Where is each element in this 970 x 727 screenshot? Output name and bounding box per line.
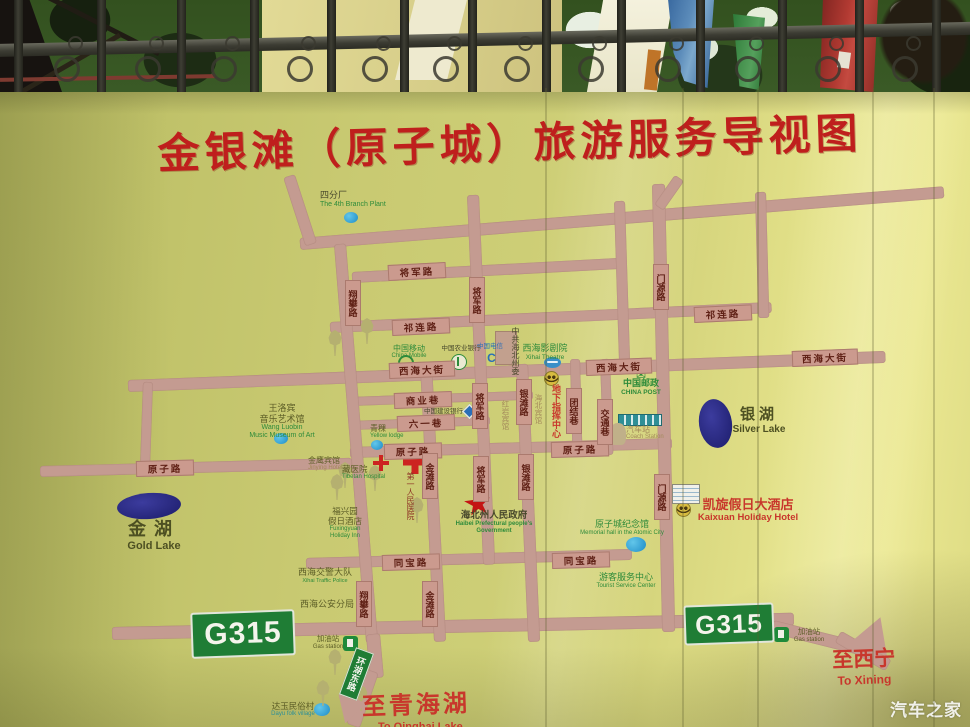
map-label: 达玉民俗村Dayu folk village — [266, 701, 320, 718]
map-label: 第一人民医院 — [402, 472, 418, 552]
fence-scroll-icon — [135, 56, 161, 82]
map-label-zh: 福兴园 假日酒店 — [316, 506, 374, 526]
fence-scroll-icon — [362, 56, 388, 82]
wheat-mark — [457, 357, 459, 366]
wave-mark — [547, 361, 558, 363]
map-label-en: Yellow lodge — [370, 433, 403, 440]
watermark: 汽车之家 — [890, 696, 962, 721]
map-label-en: Coach Station — [626, 434, 664, 441]
map-label: 中国电信 — [477, 343, 503, 351]
map-label-zh: 至西宁 — [825, 647, 902, 674]
fence-bar — [250, 0, 259, 92]
road — [652, 184, 675, 632]
map-label-zh: 西海公安分局 — [300, 599, 354, 610]
road-name-sign: 西海大街 — [389, 360, 456, 379]
map-label-zh: 四分厂 — [320, 190, 386, 201]
tree-icon — [328, 330, 342, 356]
map-label-zh: 海北州人民政府 — [438, 510, 550, 521]
fence-scroll-icon — [301, 36, 316, 51]
map-label-en: To Xining — [826, 671, 902, 688]
fence-bar — [400, 0, 409, 92]
lake-shape — [116, 491, 182, 521]
map-label-zh: 中国移动 — [390, 344, 428, 353]
map-label-zh: 加油站 — [792, 628, 826, 637]
fence-scroll-icon — [433, 56, 459, 82]
road-name-sign: 将军路 — [469, 277, 485, 323]
map-label-zh: 青稞 — [370, 424, 403, 433]
fence-bar — [542, 0, 551, 92]
map-label-zh: 第一人民医院 — [406, 472, 415, 520]
map-label-zh: 藏医院 — [342, 464, 385, 474]
road-name-sign: 翔攀路 — [356, 581, 372, 627]
road-name-sign: 西海大街 — [792, 348, 859, 367]
road-name-sign: 门源路 — [654, 474, 670, 520]
map-label-zh: 汽车站 — [626, 425, 664, 434]
road-name-sign: 银滩路 — [518, 454, 534, 500]
road-name-sign: 西海大街 — [586, 357, 653, 376]
map-label-en: Tourist Service Center — [592, 583, 660, 590]
road-name-sign: 翔攀路 — [345, 280, 361, 326]
map-label-en: Xihai Traffic Police — [292, 578, 358, 584]
map-label: To Qinghai Lake — [378, 721, 463, 727]
road-name-sign: 祁连路 — [694, 304, 753, 323]
map-label: 凯旋假日大酒店Kaixuan Holiday Hotel — [686, 497, 810, 524]
fence-scroll-icon — [578, 56, 604, 82]
map-label: 游客服务中心Tourist Service Center — [592, 572, 660, 590]
fence-bar — [617, 0, 626, 92]
map-label: 藏医院Tibetan Hospital — [342, 464, 385, 481]
map-label-zh: 中国建设银行 — [424, 408, 463, 416]
photo-of-tourist-map-sign: C✉金湖Gold Lake银湖Silver Lake将军路祁连路祁连路西海大街西… — [0, 0, 970, 727]
map-label-zh: 王洛宾 音乐艺术馆 — [232, 403, 332, 424]
map-label: 王洛宾 音乐艺术馆Wang Luobin Music Museum of Art — [232, 403, 332, 441]
road — [140, 382, 153, 472]
map-label-en: Jinying Hotel — [308, 465, 342, 472]
board-panel-seam — [545, 88, 547, 727]
road-name-sign: 将军路 — [473, 456, 489, 502]
map-label-zh: 游客服务中心 — [592, 572, 660, 583]
china-telecom-logo-icon: C — [484, 350, 499, 365]
map-label: 中国移动China Mobile — [390, 344, 428, 361]
fence-scroll-icon — [592, 36, 607, 51]
fence-bar — [327, 0, 336, 92]
map-label: 加油站Gas station — [792, 628, 826, 644]
map-label: 原子城纪念馆Memorial hall in the Atomic City — [576, 519, 668, 537]
fence-bar — [932, 0, 941, 92]
map-label: 至青海湖 — [362, 690, 471, 722]
map-label-zh: 金鹰宾馆 — [308, 456, 342, 465]
map-label-zh: 地下指挥中心 — [551, 384, 561, 438]
road — [283, 174, 317, 246]
road-name-sign: 金滩路 — [422, 453, 438, 499]
lake-label: 银湖Silver Lake — [731, 406, 787, 435]
map-label-zh: 中国邮政 — [618, 378, 664, 389]
map-label: 西海交警大队Xihai Traffic Police — [292, 567, 358, 584]
map-label-zh: 凯旋假日大酒店 — [686, 497, 810, 512]
fence-scroll-icon — [68, 36, 83, 51]
map-label-zh: 红岩宾馆 — [501, 400, 510, 430]
road-name-sign: 团结巷 — [566, 388, 582, 434]
lake-name: 银湖 — [731, 406, 787, 424]
fence-scroll-icon — [149, 36, 164, 51]
fence-bar — [14, 0, 23, 92]
map-label-en: Haibei Prefectural people's Government — [438, 521, 550, 535]
poi-dot-icon — [344, 212, 358, 223]
fence-scroll-icon — [287, 56, 313, 82]
map-label: 汽车站Coach Station — [626, 425, 664, 442]
map-label-zh: 西海交警大队 — [292, 567, 358, 578]
lake-name-en: Silver Lake — [731, 424, 787, 436]
road-name-sign: 将军路 — [472, 383, 488, 429]
lake-label: 金湖Gold Lake — [122, 519, 186, 553]
road-name-sign: 原子路 — [136, 459, 194, 477]
map-label-en: Wang Luobin Music Museum of Art — [232, 424, 332, 441]
map-label-zh: 原子城纪念馆 — [576, 519, 668, 530]
map-label: 西海公安分局 — [300, 599, 354, 610]
map-label-en: CHINA POST — [618, 389, 664, 397]
map-label-zh: 达玉民俗村 — [266, 701, 320, 711]
lake-name-en: Gold Lake — [122, 540, 186, 553]
road-name-sign: 将军路 — [388, 262, 447, 281]
map-label: 地下指挥中心 — [548, 384, 564, 466]
fence-bar — [778, 0, 787, 92]
board-panel-seam — [872, 88, 874, 727]
map-label: 至西宁To Xining — [825, 647, 902, 689]
map-label-zh: 加油站 — [312, 635, 344, 644]
g315-route-sign: G315 — [683, 602, 774, 645]
map-label: 海北州人民政府Haibei Prefectural people's Gover… — [438, 510, 550, 535]
fence-scroll-icon — [892, 56, 918, 82]
map-label-en: Fuxingyuan Holiday Inn — [316, 526, 374, 540]
fence-scroll-icon — [906, 36, 921, 51]
map-label-en: Tibetan Hospital — [342, 474, 385, 481]
poi-dot-icon — [371, 440, 383, 450]
road-name-sign: 祁连路 — [392, 317, 451, 336]
map-label: 青稞Yellow lodge — [370, 424, 403, 441]
road-name-sign: 金滩路 — [422, 581, 438, 627]
road-name-sign: 六一巷 — [397, 414, 456, 432]
map-label: 福兴园 假日酒店Fuxingyuan Holiday Inn — [316, 506, 374, 540]
fence-bar — [696, 0, 705, 92]
board-panel-seam — [757, 88, 759, 727]
fence-bar — [468, 0, 477, 92]
map-label: 海北宾馆 — [530, 394, 546, 442]
map-label: 中国建设银行 — [424, 408, 463, 416]
road — [614, 201, 630, 366]
map-label: 中国农业银行 — [440, 345, 482, 353]
map-label-zh: 中国农业银行 — [440, 345, 482, 353]
map-label: 四分厂The 4th Branch Plant — [320, 190, 386, 209]
map-label-en: China Mobile — [390, 353, 428, 360]
fence-scroll-icon — [518, 36, 533, 51]
fence-scroll-icon — [504, 56, 530, 82]
g315-route-sign: G315 — [190, 609, 296, 659]
fence-scroll-icon — [211, 56, 237, 82]
map-label-en: Kaixuan Holiday Hotel — [686, 512, 810, 523]
road-name-sign: 同宝路 — [382, 553, 440, 571]
map-label-zh: 中国电信 — [477, 343, 503, 351]
lake-name: 金湖 — [122, 519, 186, 540]
map-label-zh: 海北宾馆 — [534, 394, 543, 424]
fence-scroll-icon — [815, 56, 841, 82]
road-name-sign: 同宝路 — [552, 551, 610, 569]
tree-icon — [328, 649, 342, 675]
fence-scroll-icon — [749, 36, 764, 51]
road — [40, 458, 352, 477]
fence-scroll-icon — [225, 36, 240, 51]
map-label: 中国邮政CHINA POST — [618, 378, 664, 396]
board-panel-seam — [933, 88, 935, 727]
fence-bar — [97, 0, 106, 92]
gas-station-icon — [774, 627, 789, 642]
road-name-sign: 商业巷 — [394, 391, 453, 409]
map-label-en: Dayu folk village — [266, 711, 320, 718]
fence-scroll-icon — [54, 56, 80, 82]
fence-scroll-icon — [447, 36, 462, 51]
board-panel-seam — [682, 88, 684, 727]
tree-trunk-right — [872, 0, 970, 92]
map-label: 加油站Gas station — [312, 635, 344, 651]
fence-scroll-icon — [829, 36, 844, 51]
fence-scroll-icon — [735, 56, 761, 82]
map-label: 中共海北州委 — [507, 327, 523, 401]
map-label: 红岩宾馆 — [497, 400, 513, 448]
fence-bar — [177, 0, 186, 92]
fence-scroll-icon — [669, 36, 684, 51]
road-name-sign: 门源路 — [653, 264, 669, 310]
map-label-en: Gas station — [792, 637, 826, 644]
fence-bar — [855, 0, 864, 92]
map-label-en: Memorial hall in the Atomic City — [576, 530, 668, 537]
lake-shape — [696, 397, 735, 450]
map-label-en: The 4th Branch Plant — [320, 201, 386, 209]
photo-strip — [0, 0, 970, 92]
fence-scroll-icon — [655, 56, 681, 82]
map-label-en: Gas station — [312, 644, 344, 651]
map-label-en: To Qinghai Lake — [378, 721, 463, 727]
road-name-sign: 交通巷 — [597, 399, 613, 445]
map-label-zh: 至青海湖 — [362, 690, 471, 722]
fence-scroll-icon — [376, 36, 391, 51]
map-label: 金鹰宾馆Jinying Hotel — [308, 456, 342, 473]
poi-dot-icon — [626, 537, 646, 552]
